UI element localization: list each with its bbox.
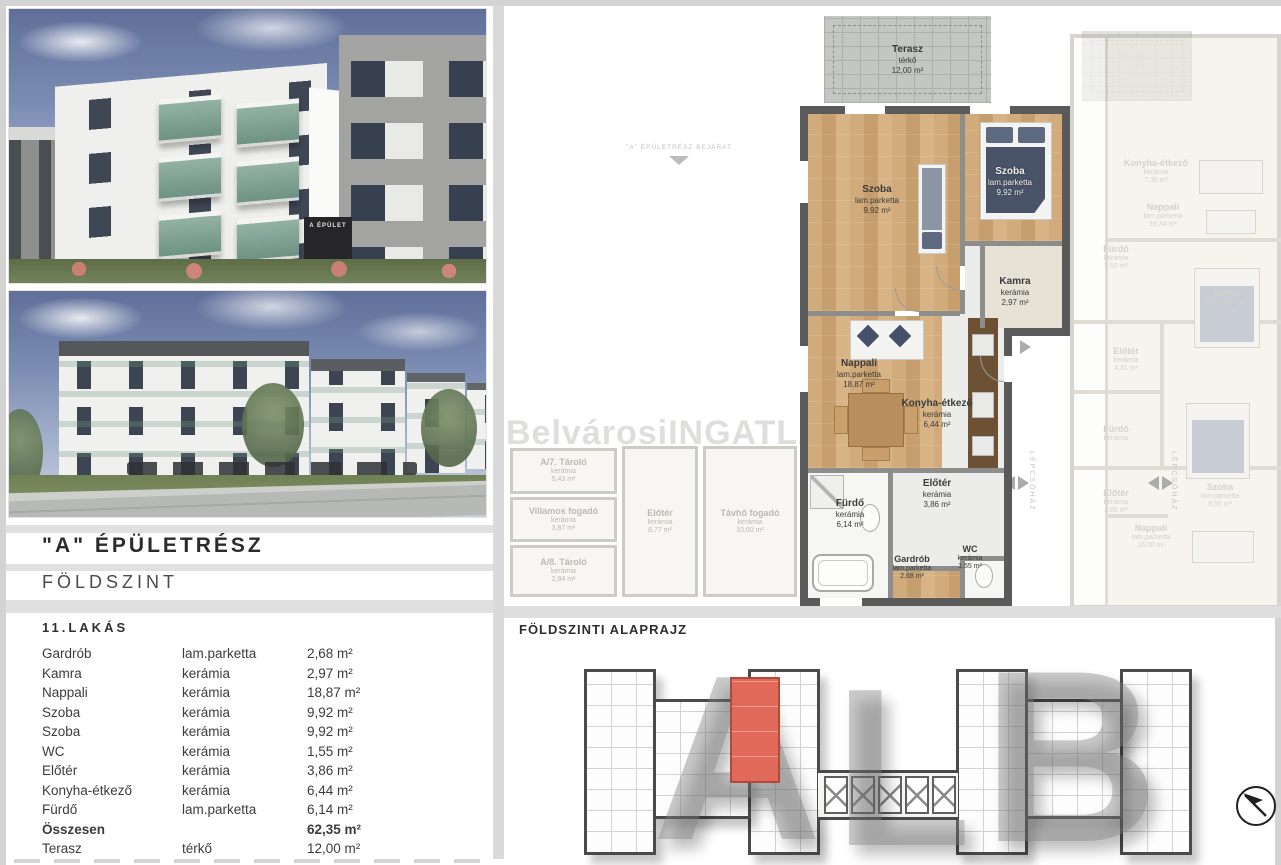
table-row: Szobakerámia9,92 m² bbox=[42, 722, 462, 742]
room-label-eloter: Előtérkerámia3,86 m² bbox=[892, 478, 982, 509]
divider-band bbox=[6, 600, 503, 613]
chair bbox=[862, 447, 890, 461]
annex-hall: Előtérkerámia8,77 m² bbox=[622, 446, 698, 597]
table-row: Fürdőlam.parketta6,14 m² bbox=[42, 800, 462, 820]
neighbor-label: Szobalam.parketta9,64 m² bbox=[1166, 288, 1281, 316]
watermark-letter-b: B bbox=[982, 652, 1159, 860]
room-label-furdo: Fürdőkerámia6,14 m² bbox=[805, 498, 895, 529]
lawn bbox=[9, 259, 487, 284]
divider-band bbox=[6, 564, 503, 571]
neighbor-label: Előtérkerámia4,31 m² bbox=[1076, 346, 1176, 374]
wall bbox=[1062, 106, 1070, 336]
partition-wall bbox=[808, 468, 1004, 473]
highlighted-unit-11 bbox=[730, 677, 780, 783]
mattress bbox=[922, 168, 942, 230]
table-row: Kamrakerámia2,97 m² bbox=[42, 664, 462, 684]
stair-direction-arrow bbox=[1148, 476, 1159, 490]
gray-facade bbox=[339, 35, 487, 283]
window-opening bbox=[800, 346, 808, 392]
balcony bbox=[159, 94, 221, 143]
fridge bbox=[972, 436, 994, 456]
storage-room-a7: A/7. Tárolókerámia5,43 m² bbox=[510, 448, 617, 494]
neighbor-wall bbox=[1108, 238, 1281, 242]
pillow bbox=[922, 232, 942, 249]
kitchen-sink bbox=[972, 334, 994, 356]
door-opening bbox=[960, 266, 965, 290]
area-table: Gardróblam.parketta2,68 m² Kamrakerámia2… bbox=[42, 644, 462, 859]
bathtub bbox=[812, 554, 874, 592]
apartment-number-title: 11.LAKÁS bbox=[42, 620, 128, 635]
building-a-left-wing bbox=[584, 669, 656, 855]
balcony bbox=[237, 214, 299, 263]
terrace-door-opening bbox=[845, 106, 885, 114]
tree bbox=[242, 383, 304, 467]
neighbor-label: Nappalilam.parketta16,34 m² bbox=[1103, 202, 1223, 230]
apartment-block bbox=[311, 359, 405, 477]
terrace: Terasz térkő 12,00 m² bbox=[824, 16, 991, 103]
neighbor-wall bbox=[1074, 390, 1164, 394]
electric-room: Villamos fogadókerámia3,87 m² bbox=[510, 497, 617, 542]
entrance-arrow-icon bbox=[669, 156, 689, 165]
tree bbox=[421, 389, 477, 467]
building-section-title: "A" ÉPÜLETRÉSZ bbox=[42, 534, 264, 558]
room-label-szoba-right: Szobalam.parketta9,92 m² bbox=[965, 166, 1055, 197]
table-row: Előtérkerámia3,86 m² bbox=[42, 761, 462, 781]
parked-cars bbox=[127, 462, 417, 475]
balcony bbox=[159, 210, 221, 259]
neighbor-label: Fürdőkerámia3,50 m² bbox=[1074, 244, 1158, 272]
terrace-label: Terasz térkő 12,00 m² bbox=[833, 25, 982, 94]
room-label-szoba-left: Szobalam.parketta9,92 m² bbox=[832, 184, 922, 215]
plan-sheet-page: A ÉPÜLET "A" ÉPÜLETRÉSZ FÖLDSZINT 11.LAK… bbox=[0, 0, 1281, 865]
balcony bbox=[237, 98, 299, 147]
terrace-door-opening bbox=[970, 106, 1010, 114]
neighbor-label: Fürdőkerámia bbox=[1074, 424, 1158, 443]
neighbor-label: Előtérkerámia2,86 m² bbox=[1074, 488, 1158, 516]
room-label-konyha: Konyha-étkezőkerámia6,44 m² bbox=[892, 398, 982, 429]
stair-direction-arrow bbox=[1018, 476, 1029, 490]
pillow bbox=[1018, 127, 1045, 143]
storage-room-a8: A/8. Tárolókerámia2,84 m² bbox=[510, 545, 617, 597]
table-total-row: Összesen62,35 m² bbox=[42, 820, 462, 840]
neighbor-label: Nappalilam.parketta16,00 m² bbox=[1091, 523, 1211, 551]
table-row: Szobakerámia9,92 m² bbox=[42, 703, 462, 723]
room-label-nappali: Nappalilam.parketta18,87 m² bbox=[814, 358, 904, 389]
section-divider-band bbox=[504, 606, 1281, 618]
wall bbox=[800, 106, 1070, 114]
partition-wall bbox=[808, 311, 960, 316]
cut-off-footer-text bbox=[14, 859, 492, 863]
entry-door-opening bbox=[1004, 356, 1012, 382]
vertical-divider bbox=[493, 6, 504, 859]
neighbor-duvet bbox=[1192, 420, 1244, 473]
building-render-photo: A ÉPÜLET bbox=[8, 8, 487, 284]
room-label-wc: WCkerámia1,55 m² bbox=[940, 544, 1000, 572]
apartment-floor-plan: BelvárosiINGATLANPont "A" ÉPÜLETRÉSZ BEJ… bbox=[504, 6, 1281, 606]
ground-floor-site-plan: A L B bbox=[504, 644, 1281, 865]
balcony bbox=[159, 152, 221, 201]
floor-title: FÖLDSZINT bbox=[42, 572, 178, 593]
room-label-kamra: Kamrakerámia2,97 m² bbox=[970, 276, 1060, 307]
window-opening bbox=[800, 161, 808, 203]
district-heating-room: Távhő fogadókerámia10,60 m² bbox=[703, 446, 797, 597]
table-row: WCkerámia1,55 m² bbox=[42, 742, 462, 762]
neighbor-label: Konyha-étkezőkerámia7,36 m² bbox=[1096, 158, 1216, 186]
table-row: Gardróblam.parketta2,68 m² bbox=[42, 644, 462, 664]
divider-band bbox=[6, 525, 503, 533]
chair bbox=[834, 406, 848, 434]
balcony bbox=[237, 156, 299, 205]
neighbor-unit-faded: Konyha-étkezőkerámia7,36 m² Nappalilam.p… bbox=[1070, 34, 1281, 609]
table-row: Terasztérkő12,00 m² bbox=[42, 839, 462, 859]
north-arrow-icon bbox=[1232, 782, 1280, 830]
table-row: Nappalikerámia18,87 m² bbox=[42, 683, 462, 703]
watermark-letter-l: L bbox=[834, 672, 971, 863]
wall bbox=[1004, 328, 1070, 336]
neighbor-label: Szobalam.parketta8,55 m² bbox=[1160, 482, 1280, 510]
stairwell-label: LÉPCSŐHÁZ bbox=[1028, 451, 1035, 511]
street-render-photo bbox=[8, 290, 487, 518]
table-row: Konyha-étkezőkerámia6,44 m² bbox=[42, 781, 462, 801]
stair-landing bbox=[1009, 333, 1062, 598]
stair-direction-arrow bbox=[1162, 476, 1173, 490]
entrance-label: "A" ÉPÜLETRÉSZ BEJÁRAT bbox=[584, 144, 774, 151]
stair-direction-arrow bbox=[1020, 340, 1031, 354]
pillow bbox=[986, 127, 1013, 143]
window-opening bbox=[820, 598, 862, 606]
entrance-sign: A ÉPÜLET bbox=[304, 223, 352, 229]
